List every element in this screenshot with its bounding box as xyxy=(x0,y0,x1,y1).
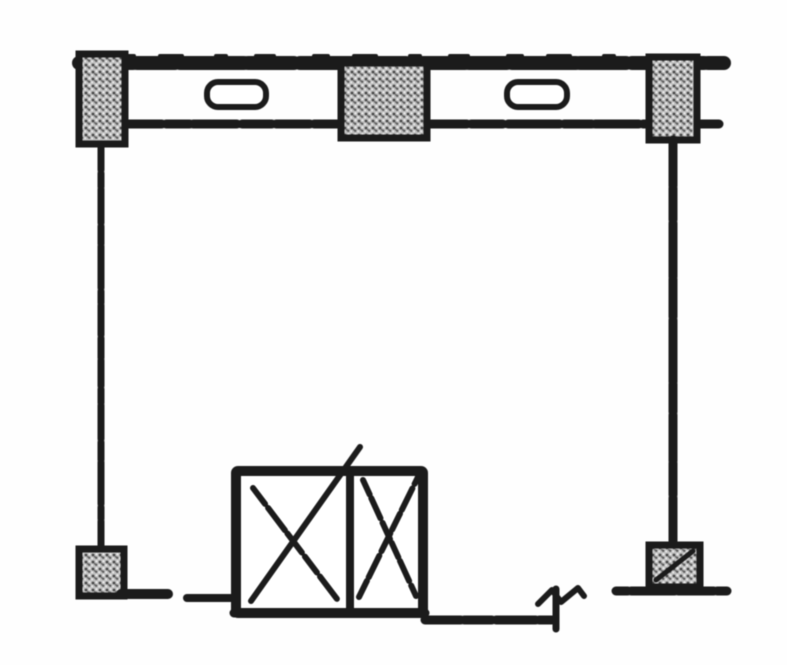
column-top-right xyxy=(649,57,697,140)
wall-break-zigzag xyxy=(538,588,584,604)
column-bottom-left xyxy=(79,549,124,596)
column-top-left xyxy=(79,54,125,144)
window-opening-right xyxy=(507,82,567,107)
floor-plan-scan xyxy=(0,0,787,665)
window-opening-left xyxy=(207,82,266,107)
floor-plan-svg xyxy=(0,0,787,665)
column-top-center xyxy=(341,63,427,138)
